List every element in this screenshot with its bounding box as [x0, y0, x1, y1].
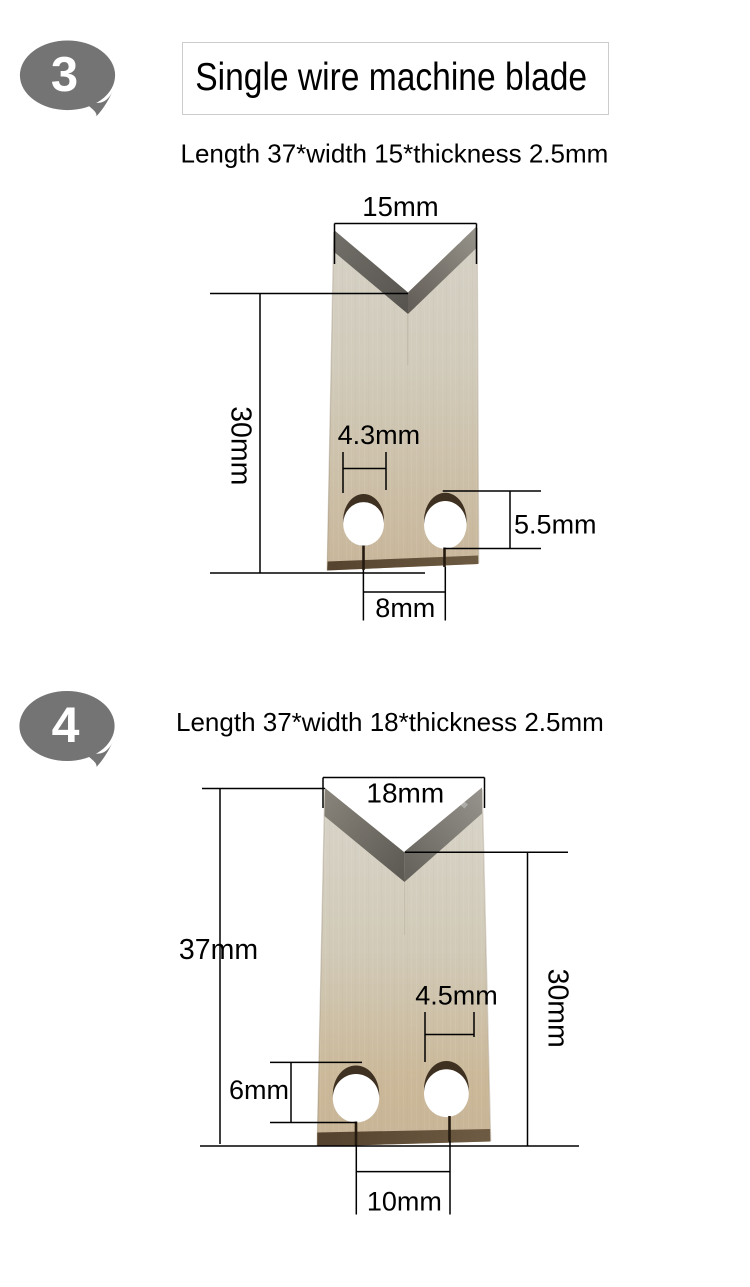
svg-text:5.5mm: 5.5mm [514, 510, 597, 540]
svg-text:Single wire machine blade: Single wire machine blade [195, 55, 587, 99]
svg-text:37mm: 37mm [179, 934, 258, 966]
svg-text:Length 37*width 18*thickness 2: Length 37*width 18*thickness 2.5mm [176, 707, 604, 737]
svg-text:4.5mm: 4.5mm [415, 981, 498, 1011]
svg-text:4: 4 [52, 697, 80, 753]
svg-text:4.3mm: 4.3mm [338, 420, 421, 450]
svg-text:8mm: 8mm [375, 593, 435, 623]
svg-text:30mm: 30mm [224, 406, 256, 485]
svg-text:Length 37*width 15*thickness 2: Length 37*width 15*thickness 2.5mm [181, 139, 609, 169]
svg-text:18mm: 18mm [366, 778, 444, 809]
svg-text:3: 3 [51, 48, 78, 102]
svg-text:10mm: 10mm [367, 1187, 442, 1217]
svg-text:30mm: 30mm [542, 969, 574, 1048]
svg-text:15mm: 15mm [362, 191, 438, 222]
svg-text:6mm: 6mm [229, 1075, 289, 1105]
